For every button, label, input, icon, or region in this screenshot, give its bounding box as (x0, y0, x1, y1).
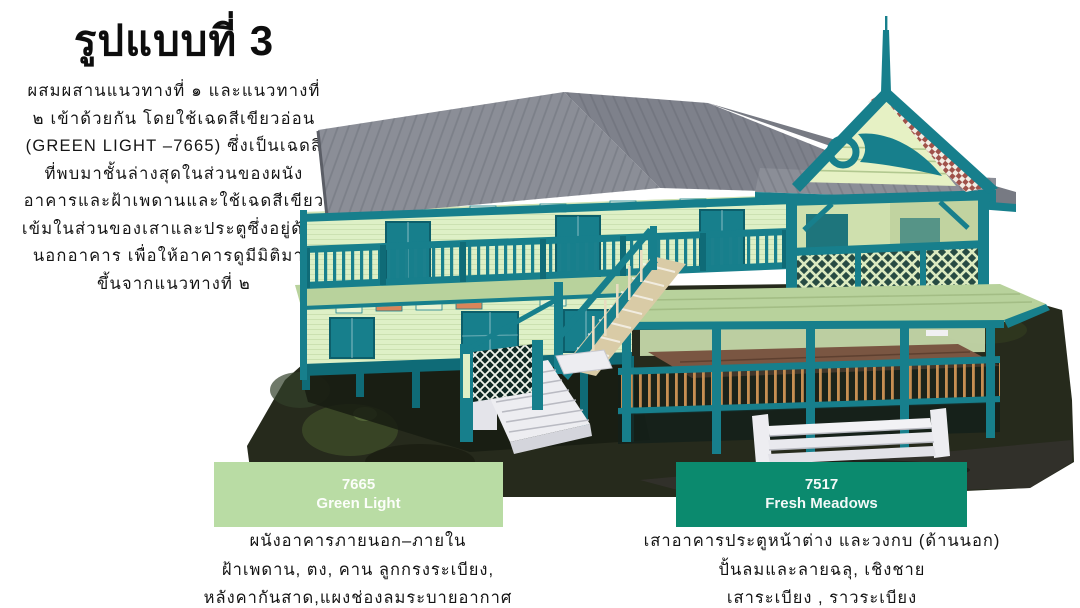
caption-line: เสาระเบียง , ราวระเบียง (582, 584, 1062, 608)
design-slide: รูปแบบที่ 3 ผสมผสานแนวทางที่ ๑ และแนวทาง… (0, 0, 1080, 608)
swatch-name: Fresh Meadows (676, 494, 967, 514)
color-swatch-green-light: 7665 Green Light (214, 462, 503, 527)
color-swatch-fresh-meadows: 7517 Fresh Meadows (676, 462, 967, 527)
swatch-caption-fresh-meadows: เสาอาคารประตูหน้าต่าง และวงกบ (ด้านนอก) … (582, 527, 1062, 608)
caption-line: ฝ้าเพดาน, ตง, คาน ลูกกรงระเบียง, (118, 556, 598, 585)
caption-line: ปั้นลมและลายฉลุ, เชิงชาย (582, 556, 1062, 585)
caption-line: หลังคากันสาด,แผงช่องลมระบายอากาศ (118, 584, 598, 608)
gable-spire (881, 30, 891, 92)
corner-trim (300, 210, 307, 380)
swatch-code: 7665 (214, 462, 503, 494)
caption-line: ผนังอาคารภายนอก–ภายใน (118, 527, 598, 556)
porch-gable (792, 16, 998, 194)
swatch-name: Green Light (214, 494, 503, 514)
swatch-code: 7517 (676, 462, 967, 494)
swatch-caption-green-light: ผนังอาคารภายนอก–ภายใน ฝ้าเพดาน, ตง, คาน … (118, 527, 598, 608)
caption-line: เสาอาคารประตูหน้าต่าง และวงกบ (ด้านนอก) (582, 527, 1062, 556)
